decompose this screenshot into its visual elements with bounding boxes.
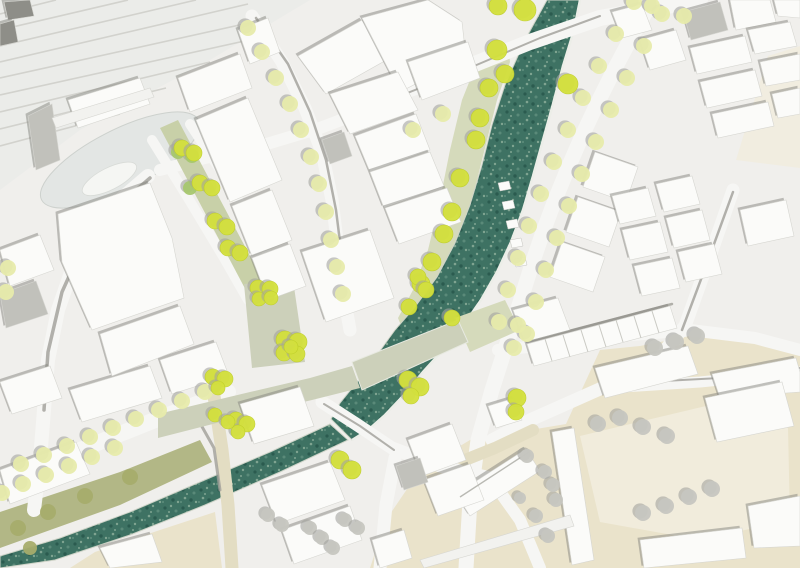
tree-gray xyxy=(529,509,543,523)
tree-gray xyxy=(261,508,275,522)
tree-bright xyxy=(264,291,278,305)
tree-pale xyxy=(619,70,635,86)
tree-gray xyxy=(546,478,560,492)
tree-pale xyxy=(84,449,100,465)
tree-pale xyxy=(311,176,327,192)
tree-pale xyxy=(510,317,526,333)
tree-olive xyxy=(10,520,26,536)
tree-bright xyxy=(435,225,453,243)
tree-bright xyxy=(423,253,441,271)
tree-pale xyxy=(491,314,507,330)
tree-bright xyxy=(496,65,514,83)
site-plan-map xyxy=(0,0,800,568)
tree-bright xyxy=(418,282,434,298)
tree-pale xyxy=(528,294,544,310)
tree-olive xyxy=(40,504,56,520)
tree-bright xyxy=(480,79,498,97)
tree-olive xyxy=(122,469,138,485)
tree-gray xyxy=(549,493,563,507)
tree-olive xyxy=(77,488,93,504)
tree-pale xyxy=(107,440,123,456)
tree-bright xyxy=(403,388,419,404)
tree-pale xyxy=(293,122,309,138)
tree-gray xyxy=(659,428,675,444)
tree-pale xyxy=(435,106,451,122)
tree-bright xyxy=(471,109,489,127)
tree-gray xyxy=(647,340,663,356)
tree-pale xyxy=(510,250,526,266)
tree-pale xyxy=(574,166,590,182)
tree-pale xyxy=(268,70,284,86)
riverbank-terrace-structure xyxy=(510,238,523,248)
riverbank-terrace-structure xyxy=(506,219,519,229)
tree-pale xyxy=(500,282,516,298)
tree-bright xyxy=(219,219,235,235)
tree-bright xyxy=(284,340,298,354)
tree-gray xyxy=(541,529,555,543)
tree-pale xyxy=(549,230,565,246)
tree-pale xyxy=(533,186,549,202)
tree-bright xyxy=(232,245,248,261)
tree-bright xyxy=(487,40,507,60)
tree-bright xyxy=(204,180,220,196)
tree-pale xyxy=(151,402,167,418)
tree-pale xyxy=(303,149,319,165)
tree-pale xyxy=(538,262,554,278)
tree-gray xyxy=(326,541,340,555)
tree-bright xyxy=(443,203,461,221)
tree-gray xyxy=(520,449,534,463)
tree-bright xyxy=(489,0,507,15)
tree-pale xyxy=(521,218,537,234)
tree-gray xyxy=(514,492,526,504)
tree-pale xyxy=(0,260,16,276)
tree-pale xyxy=(561,198,577,214)
tree-pale xyxy=(13,456,29,472)
tree-pale xyxy=(506,340,522,356)
tree-pale xyxy=(36,447,52,463)
tree-pale xyxy=(575,90,591,106)
riverbank-terrace-structure xyxy=(502,200,515,210)
tree-gray xyxy=(635,419,651,435)
tree-pale xyxy=(240,20,256,36)
tree-pale xyxy=(591,58,607,74)
tree-pale xyxy=(588,134,604,150)
tree-olive xyxy=(23,541,37,555)
tree-bright xyxy=(451,169,469,187)
tree-bright xyxy=(508,404,524,420)
tree-pale xyxy=(608,26,624,42)
tree-pale xyxy=(329,259,345,275)
tree-gray xyxy=(704,481,720,497)
tree-pale xyxy=(105,420,121,436)
tree-pale xyxy=(636,38,652,54)
tree-pale xyxy=(318,204,334,220)
tree-bright xyxy=(514,0,536,21)
tree-pale xyxy=(61,458,77,474)
tree-pale xyxy=(38,467,54,483)
tree-bright xyxy=(343,461,361,479)
tree-bright xyxy=(444,310,460,326)
tree-pale xyxy=(335,286,351,302)
tree-bright xyxy=(221,415,235,429)
tree-bright xyxy=(186,145,202,161)
tree-gray xyxy=(612,410,628,426)
tree-gray xyxy=(275,518,289,532)
tree-pale xyxy=(128,411,144,427)
riverbank-terrace-structure xyxy=(498,181,511,191)
tree-pale xyxy=(254,44,270,60)
tree-pale xyxy=(82,429,98,445)
tree-gray xyxy=(590,416,606,432)
tree-pale xyxy=(676,8,692,24)
tree-gray xyxy=(689,328,705,344)
site-plan-canvas xyxy=(0,0,800,568)
tree-bright xyxy=(467,131,485,149)
tree-gray xyxy=(668,334,684,350)
tree-pale xyxy=(282,96,298,112)
building xyxy=(774,0,800,18)
tree-gray xyxy=(658,498,674,514)
tree-bright xyxy=(401,299,417,315)
tree-pale xyxy=(546,154,562,170)
tree-pale xyxy=(59,438,75,454)
tree-pale xyxy=(603,102,619,118)
tree-gray xyxy=(351,521,365,535)
tree-gray xyxy=(635,505,651,521)
tree-bright xyxy=(211,381,225,395)
tree-pale xyxy=(560,122,576,138)
tree-pale xyxy=(323,232,339,248)
tree-pale xyxy=(15,476,31,492)
tree-bright xyxy=(558,74,578,94)
tree-gray xyxy=(681,489,697,505)
tree-pale xyxy=(174,393,190,409)
tree-pale xyxy=(405,122,421,138)
